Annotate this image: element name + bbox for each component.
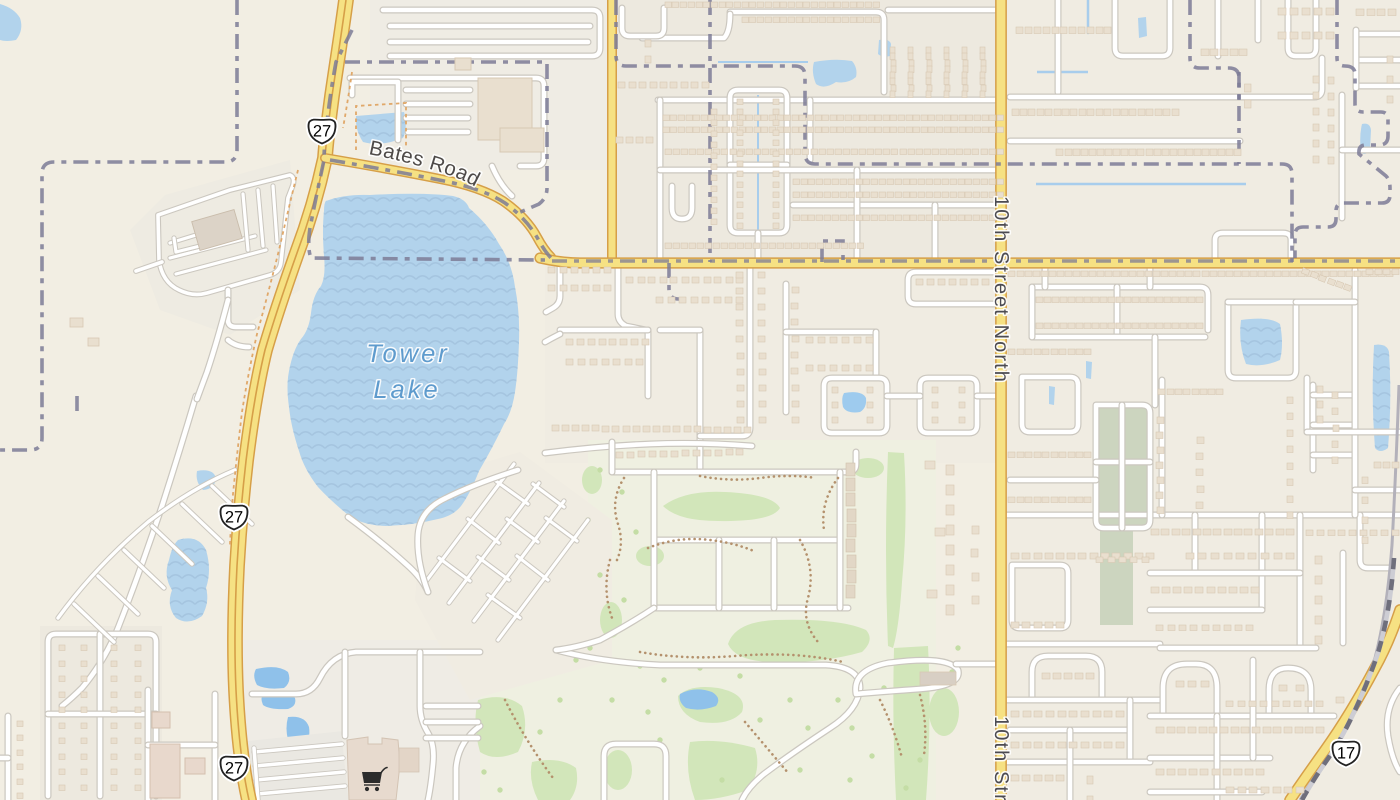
svg-text:27: 27 [225,509,243,527]
svg-text:10th Stre: 10th Stre [990,716,1012,800]
svg-text:Tower: Tower [366,340,450,368]
svg-text:27: 27 [313,123,331,141]
svg-text:Lake: Lake [373,376,440,404]
svg-text:17: 17 [1337,745,1355,763]
svg-text:10th Street North: 10th Street North [990,196,1012,384]
svg-text:27: 27 [225,760,243,778]
